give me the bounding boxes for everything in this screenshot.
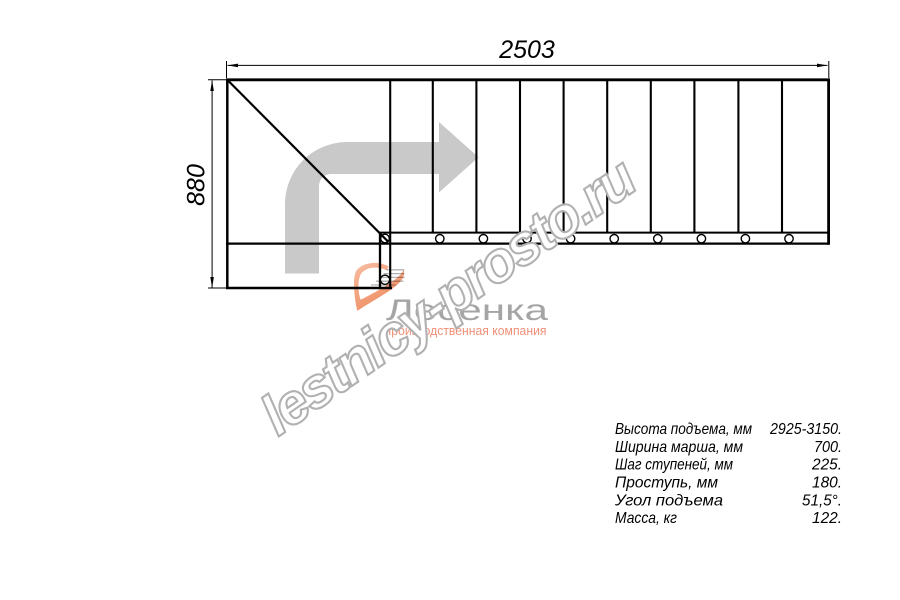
svg-text:2503: 2503 <box>498 36 555 64</box>
svg-text:51,5°.: 51,5°. <box>802 492 842 509</box>
svg-text:Ширина марша, мм: Ширина марша, мм <box>615 439 743 456</box>
svg-text:180.: 180. <box>812 475 842 492</box>
svg-text:Угол подъема: Угол подъема <box>614 492 723 509</box>
svg-text:880: 880 <box>183 164 211 206</box>
svg-text:Проступь, мм: Проступь, мм <box>615 475 718 492</box>
svg-text:Масса, кг: Масса, кг <box>615 510 677 527</box>
svg-text:700.: 700. <box>814 439 842 456</box>
svg-text:Высота подъема, мм: Высота подъема, мм <box>615 421 752 438</box>
svg-text:225.: 225. <box>811 457 842 474</box>
svg-text:Шаг ступеней, мм: Шаг ступеней, мм <box>615 457 733 474</box>
svg-text:2925-3150.: 2925-3150. <box>769 421 842 438</box>
svg-text:122.: 122. <box>812 510 842 527</box>
